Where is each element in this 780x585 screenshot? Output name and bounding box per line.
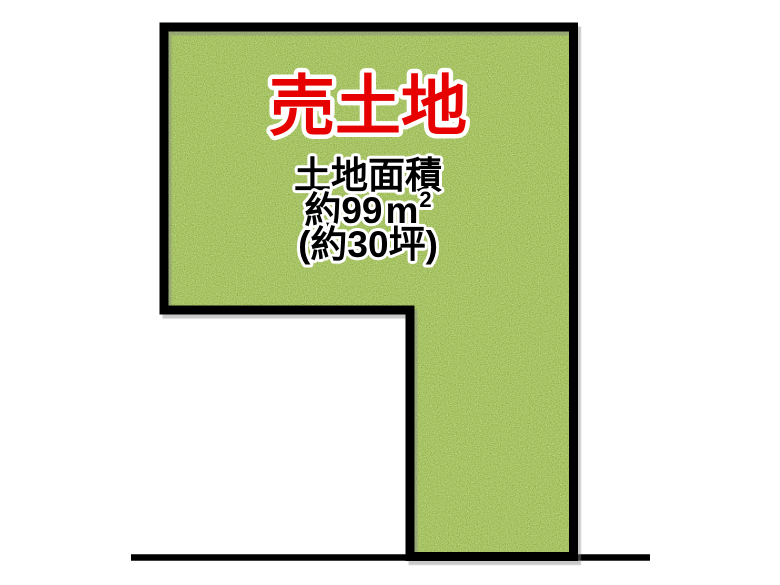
sale-label: 売土地 [269, 69, 467, 143]
area-value-tsubo: (約30坪) [298, 224, 438, 265]
land-plan-canvas: 売土地 土地面積 約99m2 (約30坪) [0, 0, 780, 585]
area-sqm-superscript: 2 [419, 187, 431, 212]
site-plan-drawing: 売土地 土地面積 約99m2 (約30坪) [0, 0, 780, 585]
